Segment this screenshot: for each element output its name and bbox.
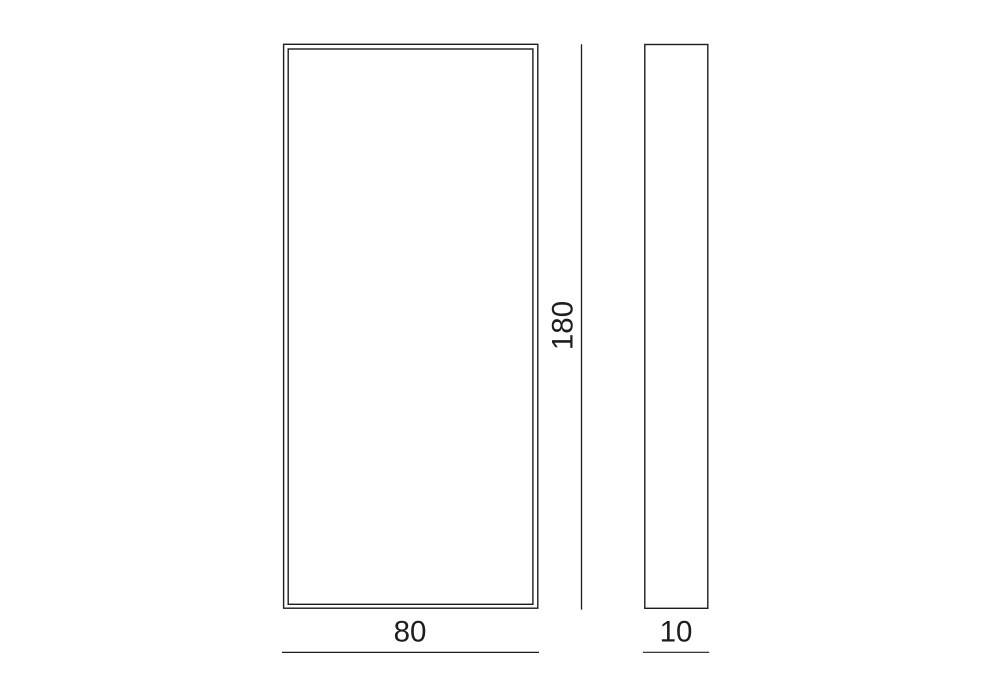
svg-text:10: 10: [660, 616, 693, 649]
svg-text:80: 80: [394, 616, 427, 649]
svg-text:180: 180: [547, 301, 580, 350]
